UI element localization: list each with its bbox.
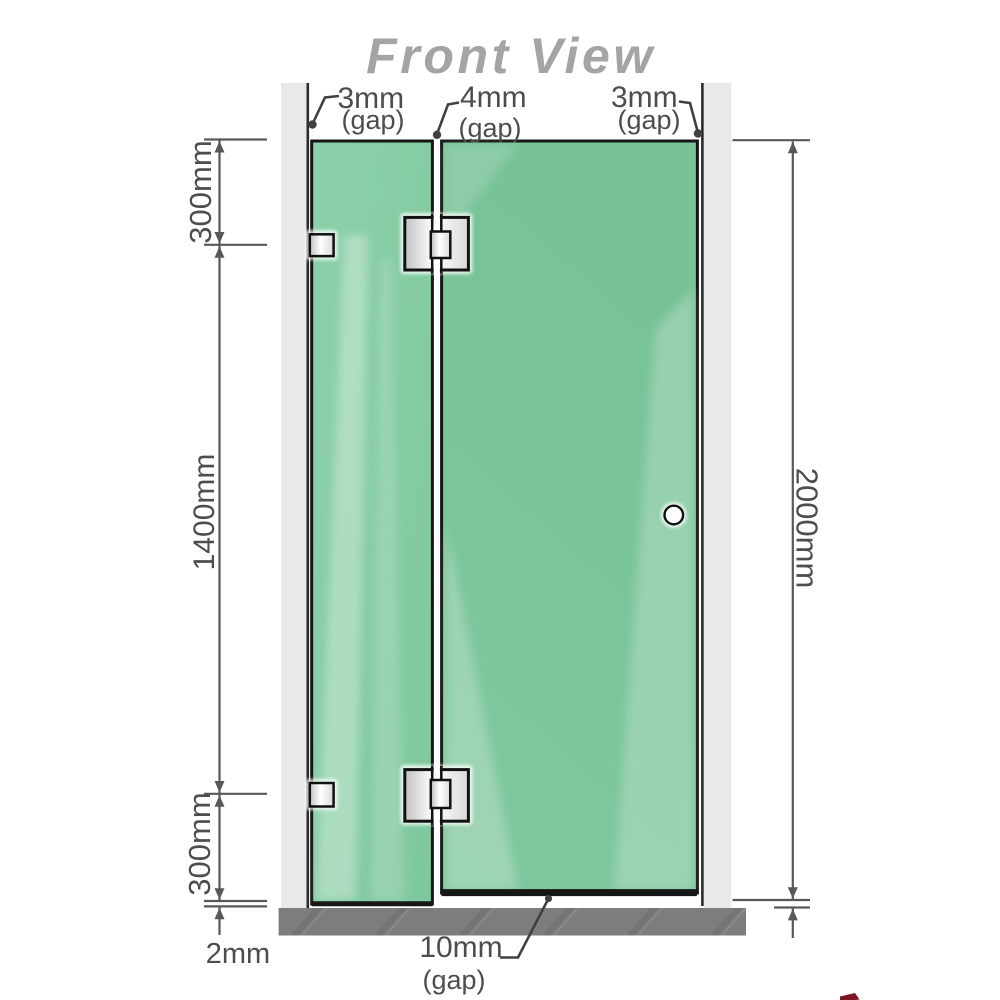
svg-text:1400mm: 1400mm (188, 454, 221, 571)
svg-text:Front View: Front View (366, 28, 656, 84)
svg-text:2mm: 2mm (206, 938, 270, 970)
svg-text:2000mm: 2000mm (790, 468, 825, 589)
svg-text:300mm: 300mm (182, 792, 217, 895)
svg-text:(gap): (gap) (617, 105, 680, 135)
svg-text:4mm: 4mm (460, 81, 527, 114)
svg-text:10mm: 10mm (419, 931, 502, 964)
svg-text:(gap): (gap) (341, 105, 404, 135)
svg-text:(gap): (gap) (422, 965, 485, 995)
svg-text:(gap): (gap) (458, 113, 521, 143)
svg-text:300mm: 300mm (183, 140, 218, 243)
